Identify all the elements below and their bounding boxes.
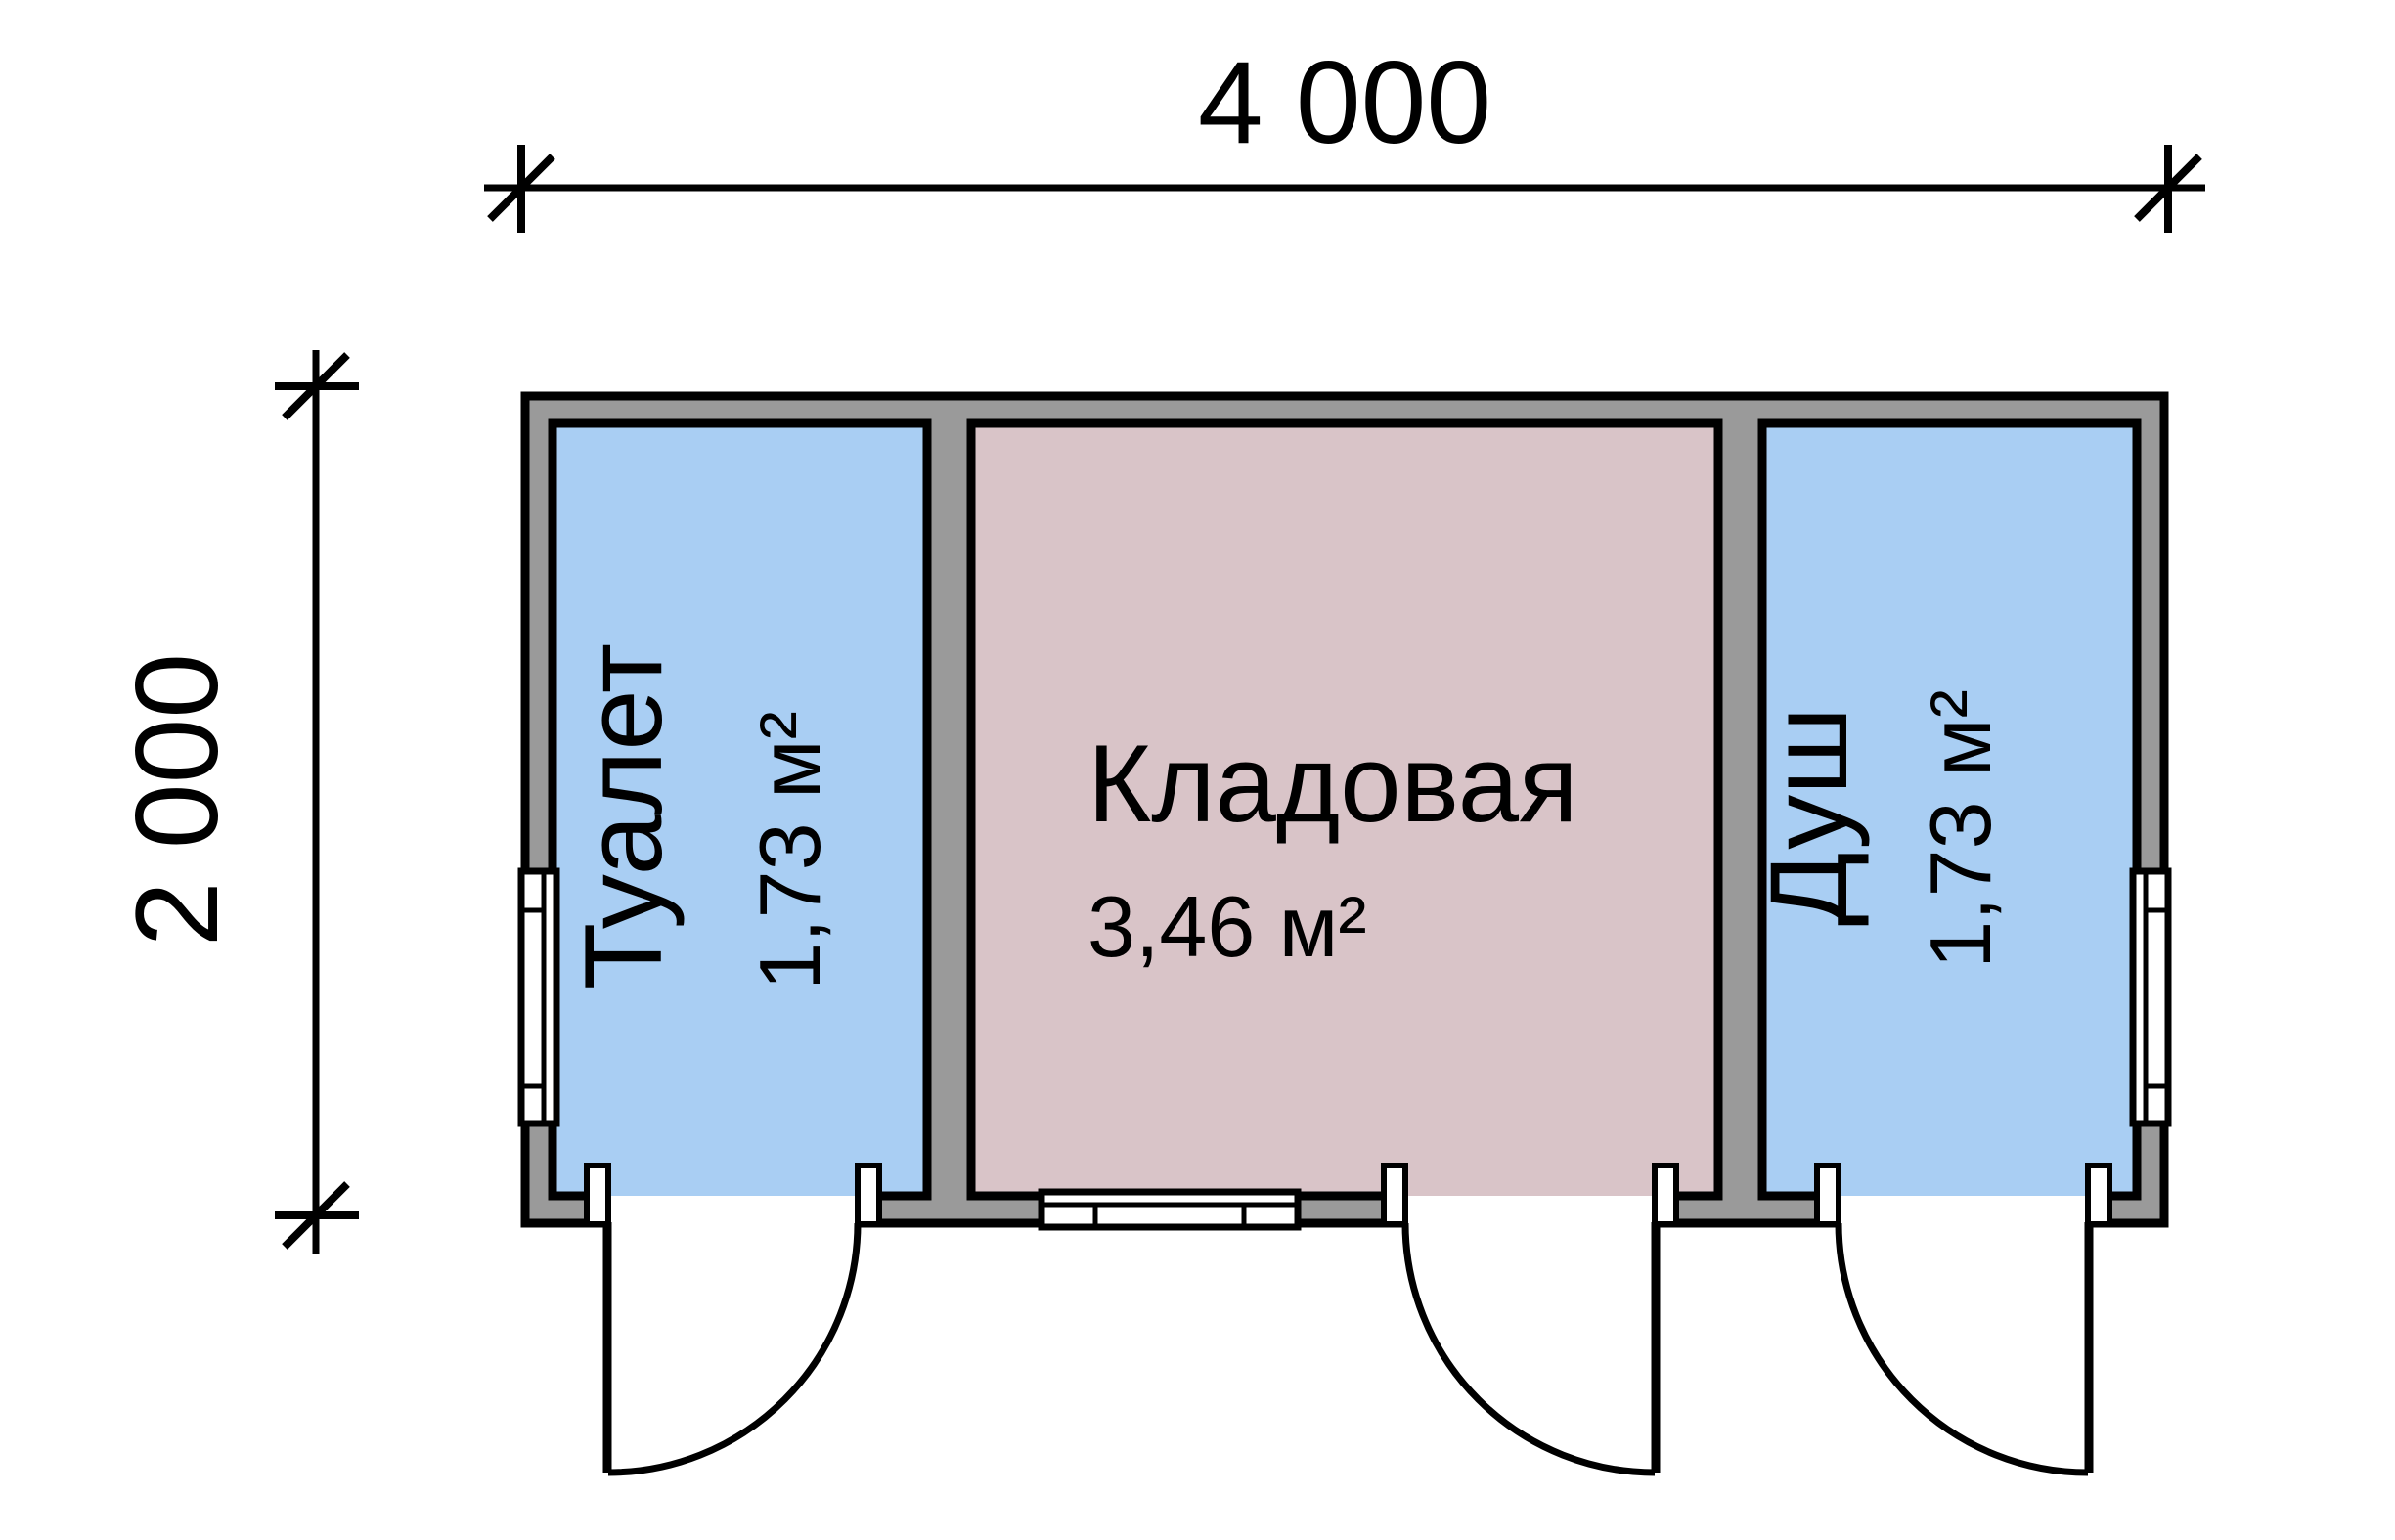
toilet-window [521, 871, 556, 1123]
shower-door-swing-arc [1839, 1223, 2088, 1473]
storage-door-threshold [1405, 1173, 1655, 1196]
shower-door-threshold [1839, 1173, 2088, 1196]
top-dimension-label: 4 000 [1198, 37, 1491, 168]
storage-window [1042, 1192, 1298, 1227]
storage-door [1384, 1166, 1676, 1473]
room-toilet-label: Туалет [562, 643, 685, 990]
storage-window-frame [1042, 1192, 1298, 1227]
floor-plan-canvas: 4 000 2 000 [0, 0, 2395, 1540]
left-dimension [275, 350, 359, 1254]
shower-window [2133, 871, 2168, 1123]
left-dimension-label: 2 000 [111, 653, 243, 946]
storage-door-jamb-left [1384, 1166, 1405, 1224]
room-shower-area: 1,73 м² [1912, 689, 2009, 969]
shower-door-jamb-right [2088, 1166, 2109, 1224]
shower-door [1817, 1166, 2109, 1473]
floor-plan-drawing: 4 000 2 000 [0, 0, 2395, 1540]
room-shower-label: Душ [1748, 707, 1870, 926]
toilet-door-threshold [608, 1173, 858, 1196]
toilet-door [587, 1166, 879, 1473]
room-toilet-area: 1,73 м² [741, 711, 838, 990]
storage-door-jamb-right [1655, 1166, 1676, 1224]
toilet-door-jamb-right [858, 1166, 879, 1224]
toilet-door-swing-arc [608, 1223, 858, 1473]
storage-door-swing-arc [1405, 1223, 1655, 1473]
toilet-door-jamb-left [587, 1166, 608, 1224]
shower-door-jamb-left [1817, 1166, 1839, 1224]
room-storage-label: Кладовая [1087, 723, 1578, 845]
room-storage-area: 3,46 м² [1087, 878, 1367, 975]
